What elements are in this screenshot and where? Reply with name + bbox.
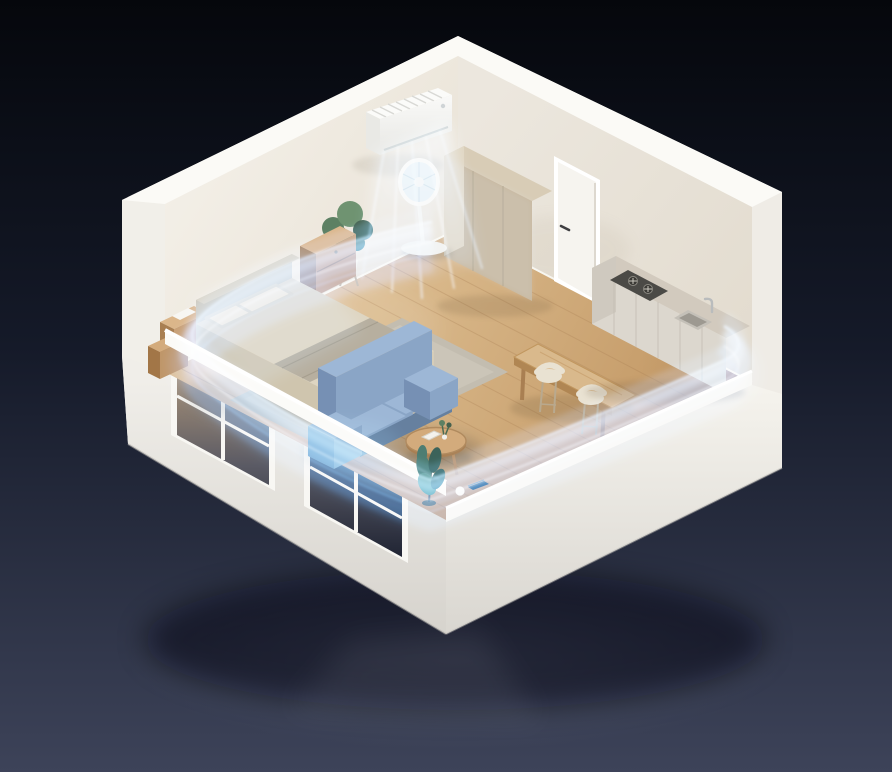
sofa-airflow-wash bbox=[290, 419, 400, 471]
door-panel bbox=[558, 162, 596, 300]
fan-airflow-glow bbox=[394, 155, 446, 215]
wardrobe-shadow bbox=[437, 295, 553, 317]
ac-end bbox=[366, 112, 380, 155]
ac-indicator bbox=[441, 104, 445, 108]
room-render-canvas bbox=[0, 0, 892, 772]
stool-seat bbox=[536, 369, 562, 383]
stool-cross bbox=[540, 404, 556, 405]
